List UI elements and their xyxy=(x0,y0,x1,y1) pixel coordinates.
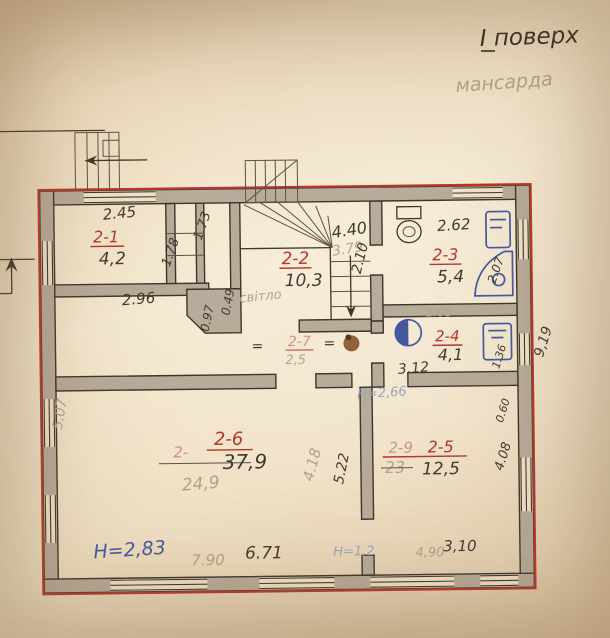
window-right-1 xyxy=(517,219,529,259)
room-24-label: 2-4 4,1 1.36 3.12 xyxy=(397,326,510,377)
dim-room26-bottom-old: 7.90 xyxy=(191,551,225,569)
window-right-3 xyxy=(520,457,533,511)
bottom-notes: Н=2,83 7.90 6.71 Н=1,2 4,90 3,10 xyxy=(93,533,477,571)
dim-right-total: 9,19 xyxy=(531,324,556,359)
header: І поверх мансарда xyxy=(455,23,580,97)
room-26-label: 2- 2-6 37,9 24,9 xyxy=(158,428,267,496)
toilet-icon xyxy=(397,207,421,243)
room-id: 2-3 xyxy=(432,245,458,264)
room-id: 2-5 xyxy=(428,437,454,456)
note-height-main: Н=2,83 xyxy=(93,537,167,564)
dim-shaft-right: 1.73 xyxy=(191,210,215,242)
strike-mark-left: = xyxy=(252,338,264,354)
room-id: 2-1 xyxy=(93,227,119,246)
room-id: 2-4 xyxy=(435,327,460,345)
dim-room26-mid: 4.18 xyxy=(299,446,325,483)
plan: 2.45 2-1 4,2 2.96 1.78 1.73 5.07 4.40 3.… xyxy=(0,125,559,595)
dim-room23-bottom: 2.05 xyxy=(426,305,453,319)
boiler-icon xyxy=(395,320,421,346)
dim-room21-top: 2.45 xyxy=(102,203,137,224)
floorplan-drawing: І поверх мансарда xyxy=(0,0,610,638)
note-height-low: Н=1,2 xyxy=(333,544,375,560)
window-bottom-3 xyxy=(370,575,454,588)
exterior-porch-stairs xyxy=(0,130,148,192)
room-id: 2-7 xyxy=(288,334,311,350)
heater-icon xyxy=(486,211,510,247)
window-top-room23 xyxy=(453,187,503,200)
room-area: 10,3 xyxy=(285,271,323,291)
room-27-label: = 2-7 = 2,5 xyxy=(251,334,335,369)
old-room-id: 2-9 xyxy=(388,439,413,457)
room-area: 5,4 xyxy=(437,267,464,287)
window-bottom-2 xyxy=(259,577,334,590)
room-area: 4,2 xyxy=(99,249,126,269)
attic-note: мансарда xyxy=(455,68,554,97)
dim-room21-bottom: 2.96 xyxy=(121,289,156,310)
old-room-id: 2- xyxy=(173,443,188,461)
dim-corridor-right: 3.12 xyxy=(397,359,429,378)
note-height-door: Н=2,66 xyxy=(357,384,407,402)
window-right-2 xyxy=(518,333,530,365)
room-id: 2-2 xyxy=(281,249,309,269)
window-bottom-1 xyxy=(110,578,207,591)
room-25-label: 2-9 2-5 23 12,5 xyxy=(381,437,468,480)
dim-room23-top: 2.62 xyxy=(436,215,470,235)
entry-arrow-icon xyxy=(0,257,35,293)
room-area: 37,9 xyxy=(222,449,267,474)
strike-mark-right: = xyxy=(323,336,335,352)
dim-shaft-left: 1.78 xyxy=(159,236,183,268)
room-area: 12,5 xyxy=(422,459,460,479)
dim-room25-right: 4.08 xyxy=(492,440,515,472)
window-top-room21 xyxy=(84,191,156,204)
dim-room25-left: 5.22 xyxy=(331,452,353,486)
room-area: 2,5 xyxy=(285,353,306,368)
room-id: 2-6 xyxy=(214,429,244,450)
dim-right-upper: 0.60 xyxy=(493,397,513,424)
dim-room23-right: 2.07 xyxy=(485,255,507,285)
room-area: 4,1 xyxy=(438,345,464,364)
window-left-1 xyxy=(41,241,54,285)
floorplan-photo: І поверх мансарда xyxy=(0,0,610,638)
dim-room26-bottom: 6.71 xyxy=(245,543,283,563)
dim-room24-right: 1.36 xyxy=(489,343,509,370)
dim-stair-top: 4.40 xyxy=(330,218,368,242)
dim-room25-bottom-old: 4,90 xyxy=(415,545,444,560)
window-bottom-4 xyxy=(480,574,518,586)
dim-room25-bottom: 3,10 xyxy=(443,537,477,555)
old-room-area: 24,9 xyxy=(181,473,220,496)
window-left-3 xyxy=(44,495,57,543)
room-note: світло xyxy=(239,287,283,306)
room-22-label: 4.40 3.79 2-2 10,3 світло xyxy=(238,218,369,307)
floor-title: І поверх xyxy=(479,23,579,52)
